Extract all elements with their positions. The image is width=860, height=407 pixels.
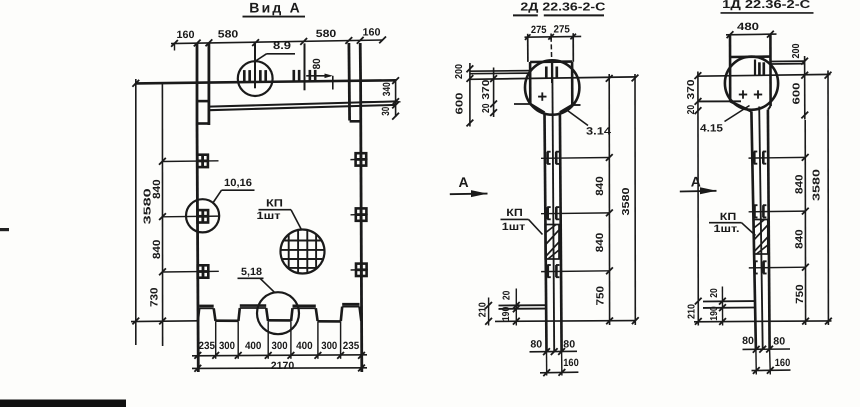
svg-text:300: 300 — [321, 340, 337, 352]
svg-text:840: 840 — [151, 179, 163, 199]
svg-text:Вид А: Вид А — [249, 0, 302, 16]
svg-text:300: 300 — [272, 340, 288, 352]
svg-text:480: 480 — [737, 21, 759, 33]
svg-text:400: 400 — [296, 340, 313, 352]
svg-text:80: 80 — [530, 339, 542, 351]
svg-text:300: 300 — [219, 340, 235, 352]
svg-text:А: А — [691, 173, 701, 189]
svg-text:340: 340 — [381, 82, 393, 96]
svg-text:5,18: 5,18 — [241, 266, 262, 278]
svg-text:200: 200 — [454, 64, 465, 79]
svg-text:КП: КП — [720, 211, 737, 223]
svg-text:840: 840 — [594, 176, 606, 196]
svg-text:160: 160 — [563, 357, 579, 369]
svg-text:1шт.: 1шт. — [714, 223, 740, 235]
svg-text:400: 400 — [245, 340, 262, 352]
svg-text:370: 370 — [481, 79, 492, 100]
svg-text:4.15: 4.15 — [700, 122, 723, 134]
svg-text:160: 160 — [177, 29, 195, 41]
svg-text:2Д 22.36-2-С: 2Д 22.36-2-С — [520, 1, 605, 13]
svg-text:200: 200 — [791, 43, 802, 58]
svg-text:А: А — [458, 174, 468, 190]
svg-text:10,16: 10,16 — [224, 177, 252, 189]
svg-text:840: 840 — [793, 174, 805, 194]
svg-text:3580: 3580 — [621, 187, 632, 216]
svg-text:8.9: 8.9 — [273, 40, 291, 52]
svg-text:840: 840 — [151, 239, 163, 259]
svg-text:190: 190 — [709, 306, 720, 321]
svg-text:3580: 3580 — [812, 168, 823, 201]
svg-text:275: 275 — [531, 24, 547, 36]
svg-text:210: 210 — [478, 302, 489, 317]
svg-text:КП: КП — [266, 198, 283, 210]
svg-text:840: 840 — [594, 233, 606, 253]
svg-text:20: 20 — [502, 290, 513, 300]
svg-text:190: 190 — [501, 306, 512, 321]
svg-text:730: 730 — [148, 287, 160, 307]
svg-text:80: 80 — [563, 339, 575, 351]
svg-text:20: 20 — [481, 103, 492, 113]
svg-text:840: 840 — [794, 229, 806, 249]
svg-text:235: 235 — [199, 340, 216, 352]
svg-text:580: 580 — [316, 28, 337, 40]
svg-text:370: 370 — [686, 79, 697, 100]
svg-text:80: 80 — [742, 335, 754, 347]
svg-text:20: 20 — [686, 104, 697, 114]
svg-text:80: 80 — [773, 335, 785, 347]
svg-text:750: 750 — [794, 284, 806, 304]
svg-text:160: 160 — [363, 26, 381, 38]
svg-text:3.14: 3.14 — [586, 125, 611, 137]
svg-text:КП: КП — [506, 207, 523, 219]
svg-text:1шт: 1шт — [502, 221, 526, 233]
svg-text:210: 210 — [686, 304, 697, 319]
svg-text:750: 750 — [594, 286, 606, 306]
svg-text:275: 275 — [554, 23, 571, 35]
svg-text:160: 160 — [775, 357, 791, 369]
svg-text:20: 20 — [709, 288, 720, 298]
svg-text:600: 600 — [792, 82, 803, 105]
svg-text:1Д 22.36-2-С: 1Д 22.36-2-С — [722, 0, 810, 11]
svg-text:235: 235 — [343, 340, 360, 352]
svg-text:30: 30 — [380, 107, 392, 116]
svg-text:80: 80 — [311, 58, 323, 69]
svg-text:580: 580 — [218, 29, 239, 41]
svg-text:2170: 2170 — [271, 360, 295, 372]
svg-text:1шт: 1шт — [257, 210, 281, 222]
svg-text:600: 600 — [455, 92, 466, 115]
